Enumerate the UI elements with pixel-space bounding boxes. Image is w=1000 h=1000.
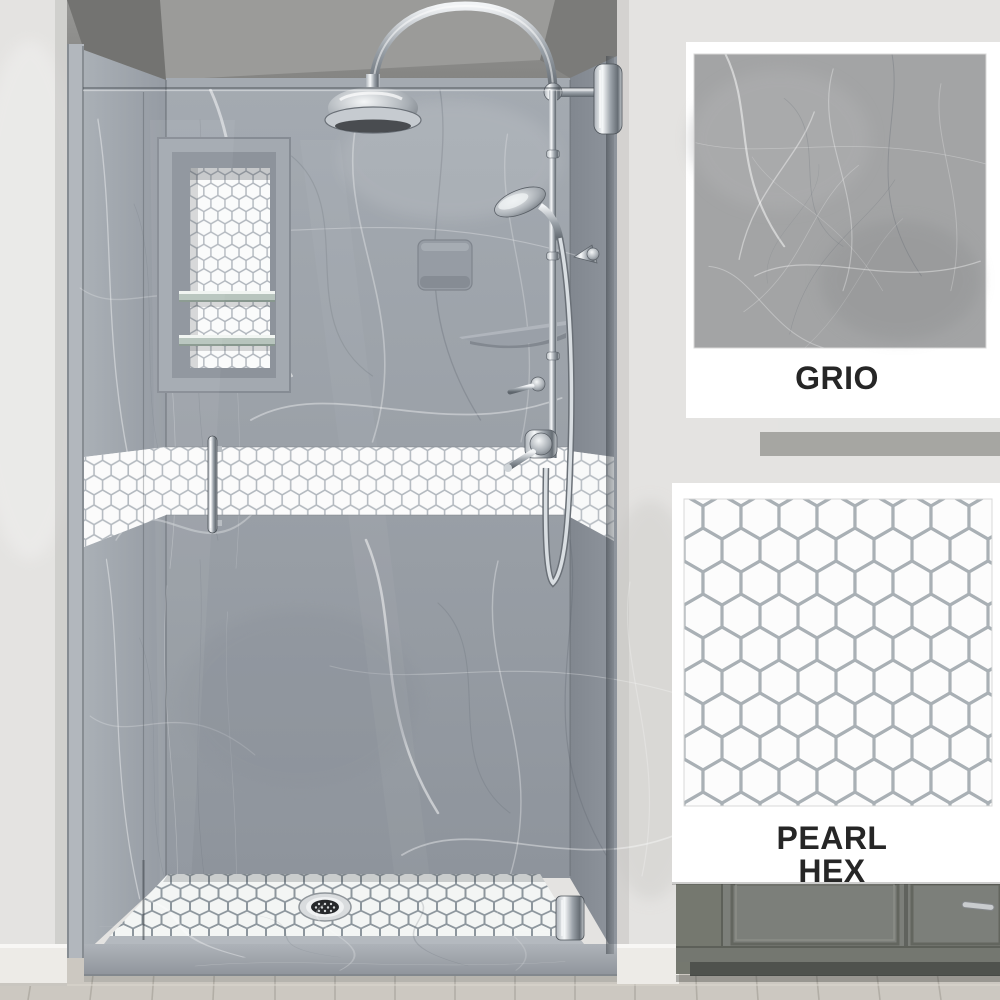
shower-column-pipe: [549, 90, 557, 458]
glass-right-edge: [606, 56, 614, 954]
vanity-toe-kick: [690, 962, 1000, 976]
swatch-card-stack: [760, 418, 1000, 456]
baseboard-left: [0, 944, 67, 986]
vanity-cabinet: [676, 884, 1000, 982]
wall-mount-arm: [557, 88, 595, 97]
floor-drain: [299, 893, 351, 921]
pearl-hex-label-line2: HEX: [674, 855, 990, 888]
baseboard-right: [617, 944, 679, 984]
alcove-left-shadow: [55, 0, 69, 960]
pearl-hex-swatch-label: PEARL HEX: [674, 822, 990, 888]
pearl-hex-label-line1: PEARL: [674, 822, 990, 855]
glass-hinge-bottom: [556, 896, 584, 940]
glass-clamp-top: [594, 64, 622, 134]
alcove-right-shadow: [615, 0, 629, 946]
grio-swatch-label: GRIO: [688, 362, 986, 395]
left-edge-trim: [67, 44, 84, 980]
soap-dish: [418, 240, 472, 290]
shower-product-photo: GRIO PEARL HEX: [0, 0, 1000, 1000]
